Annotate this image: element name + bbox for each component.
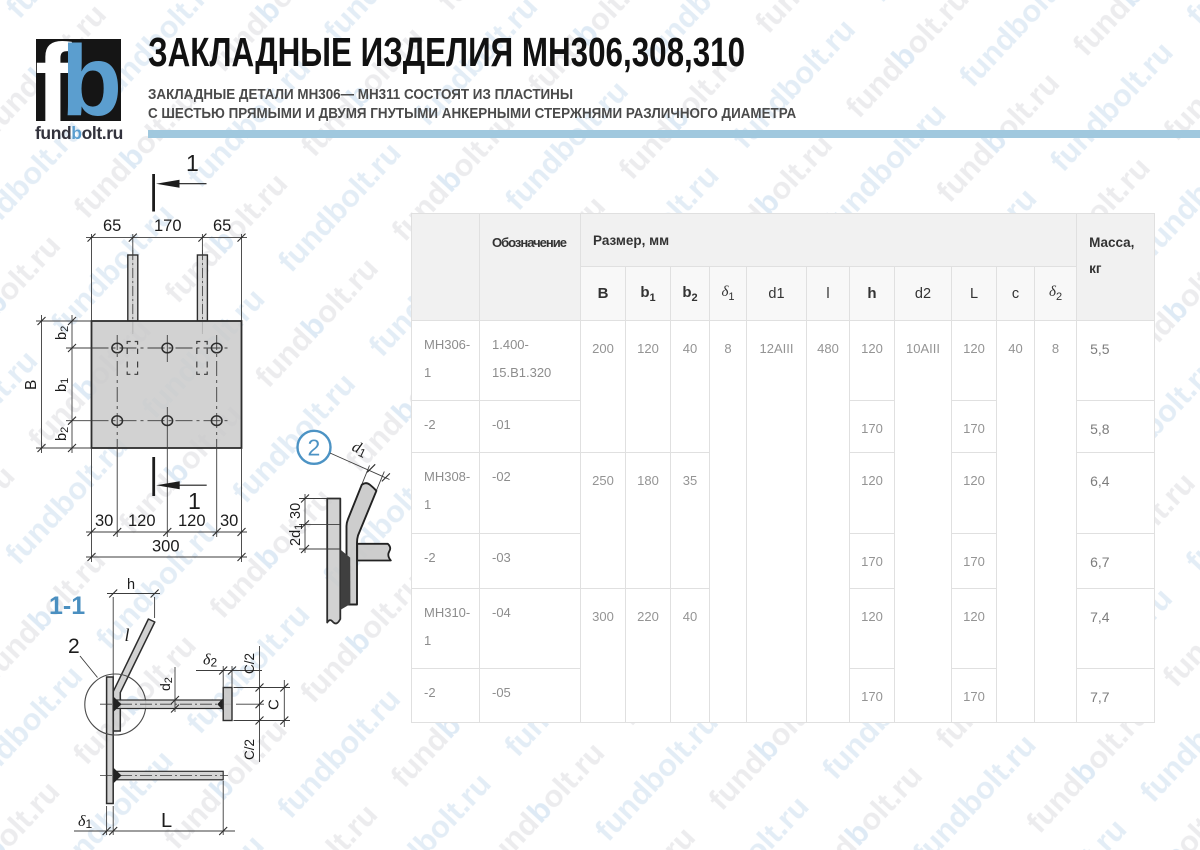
svg-text:b1: b1 [54,378,71,392]
svg-text:1: 1 [188,488,201,514]
svg-text:2: 2 [308,435,321,461]
svg-text:C: C [266,699,283,710]
svg-text:120: 120 [128,512,156,530]
svg-text:δ2: δ2 [203,652,217,670]
svg-text:1-1: 1-1 [49,592,85,620]
svg-text:δ1: δ1 [78,813,92,831]
svg-text:30: 30 [288,503,304,519]
svg-text:30: 30 [95,512,113,530]
svg-text:30: 30 [220,512,238,530]
svg-text:h: h [127,577,135,593]
svg-text:b2: b2 [54,326,71,340]
svg-text:2d1: 2d1 [288,524,305,546]
svg-text:120: 120 [178,512,206,530]
svg-text:L: L [161,810,172,832]
svg-text:b2: b2 [54,427,71,441]
svg-text:65: 65 [213,217,231,235]
svg-text:d2: d2 [157,677,175,691]
svg-text:l: l [125,625,130,645]
svg-text:C/2: C/2 [242,739,257,760]
svg-text:1: 1 [186,150,199,176]
svg-text:65: 65 [103,217,121,235]
svg-text:d1: d1 [349,438,370,461]
svg-text:B: B [23,380,40,390]
svg-text:300: 300 [152,538,180,556]
svg-text:2: 2 [68,635,80,658]
svg-text:170: 170 [154,217,182,235]
svg-text:C/2: C/2 [242,653,257,674]
